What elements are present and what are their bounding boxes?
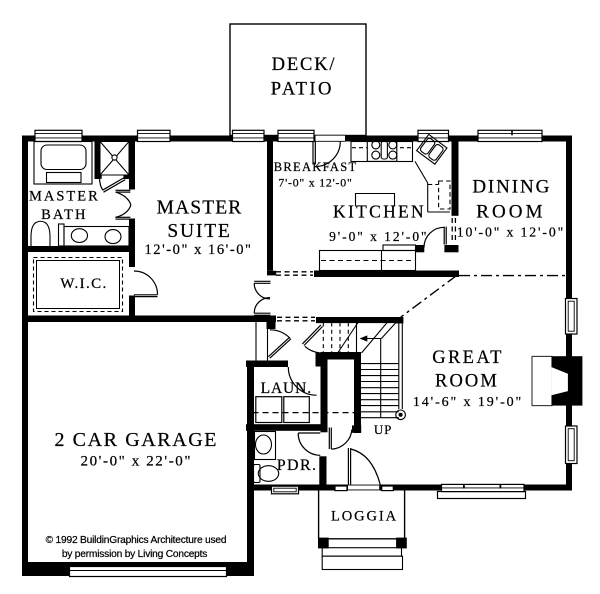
svg-text:ROOM: ROOM [435, 372, 499, 392]
svg-text:10'-0" x 12'-0": 10'-0" x 12'-0" [457, 225, 565, 240]
svg-text:UP: UP [374, 422, 392, 437]
svg-text:GREAT: GREAT [432, 348, 504, 368]
svg-text:2 CAR GARAGE: 2 CAR GARAGE [54, 429, 218, 451]
svg-text:DINING: DINING [472, 176, 551, 197]
svg-text:BATH: BATH [41, 207, 88, 223]
svg-text:12'-0" x 16'-0": 12'-0" x 16'-0" [145, 242, 253, 258]
svg-text:ROOM: ROOM [476, 202, 545, 223]
svg-text:20'-0" x 22'-0": 20'-0" x 22'-0" [80, 454, 192, 470]
svg-text:LOGGIA: LOGGIA [331, 509, 398, 525]
svg-text:9'-0" x 12'-0": 9'-0" x 12'-0" [329, 229, 428, 244]
svg-text:W.I.C.: W.I.C. [60, 276, 107, 292]
svg-text:PDR.: PDR. [277, 457, 318, 474]
svg-text:by permission by Living Concep: by permission by Living Concepts [62, 549, 207, 560]
svg-text:LAUN.: LAUN. [261, 380, 312, 397]
svg-text:7'-0" x 12'-0": 7'-0" x 12'-0" [278, 176, 352, 190]
svg-text:14'-6" x 19'-0": 14'-6" x 19'-0" [413, 395, 523, 410]
svg-text:MASTER: MASTER [157, 198, 243, 219]
svg-text:DECK/: DECK/ [272, 54, 337, 75]
svg-text:© 1992 BuildinGraphics Archite: © 1992 BuildinGraphics Architecture used [46, 535, 227, 546]
svg-text:KITCHEN: KITCHEN [333, 202, 426, 222]
svg-text:BREAKFAST: BREAKFAST [274, 160, 358, 174]
svg-text:MASTER: MASTER [29, 189, 100, 205]
svg-text:PATIO: PATIO [271, 79, 334, 100]
svg-text:SUITE: SUITE [167, 221, 231, 242]
